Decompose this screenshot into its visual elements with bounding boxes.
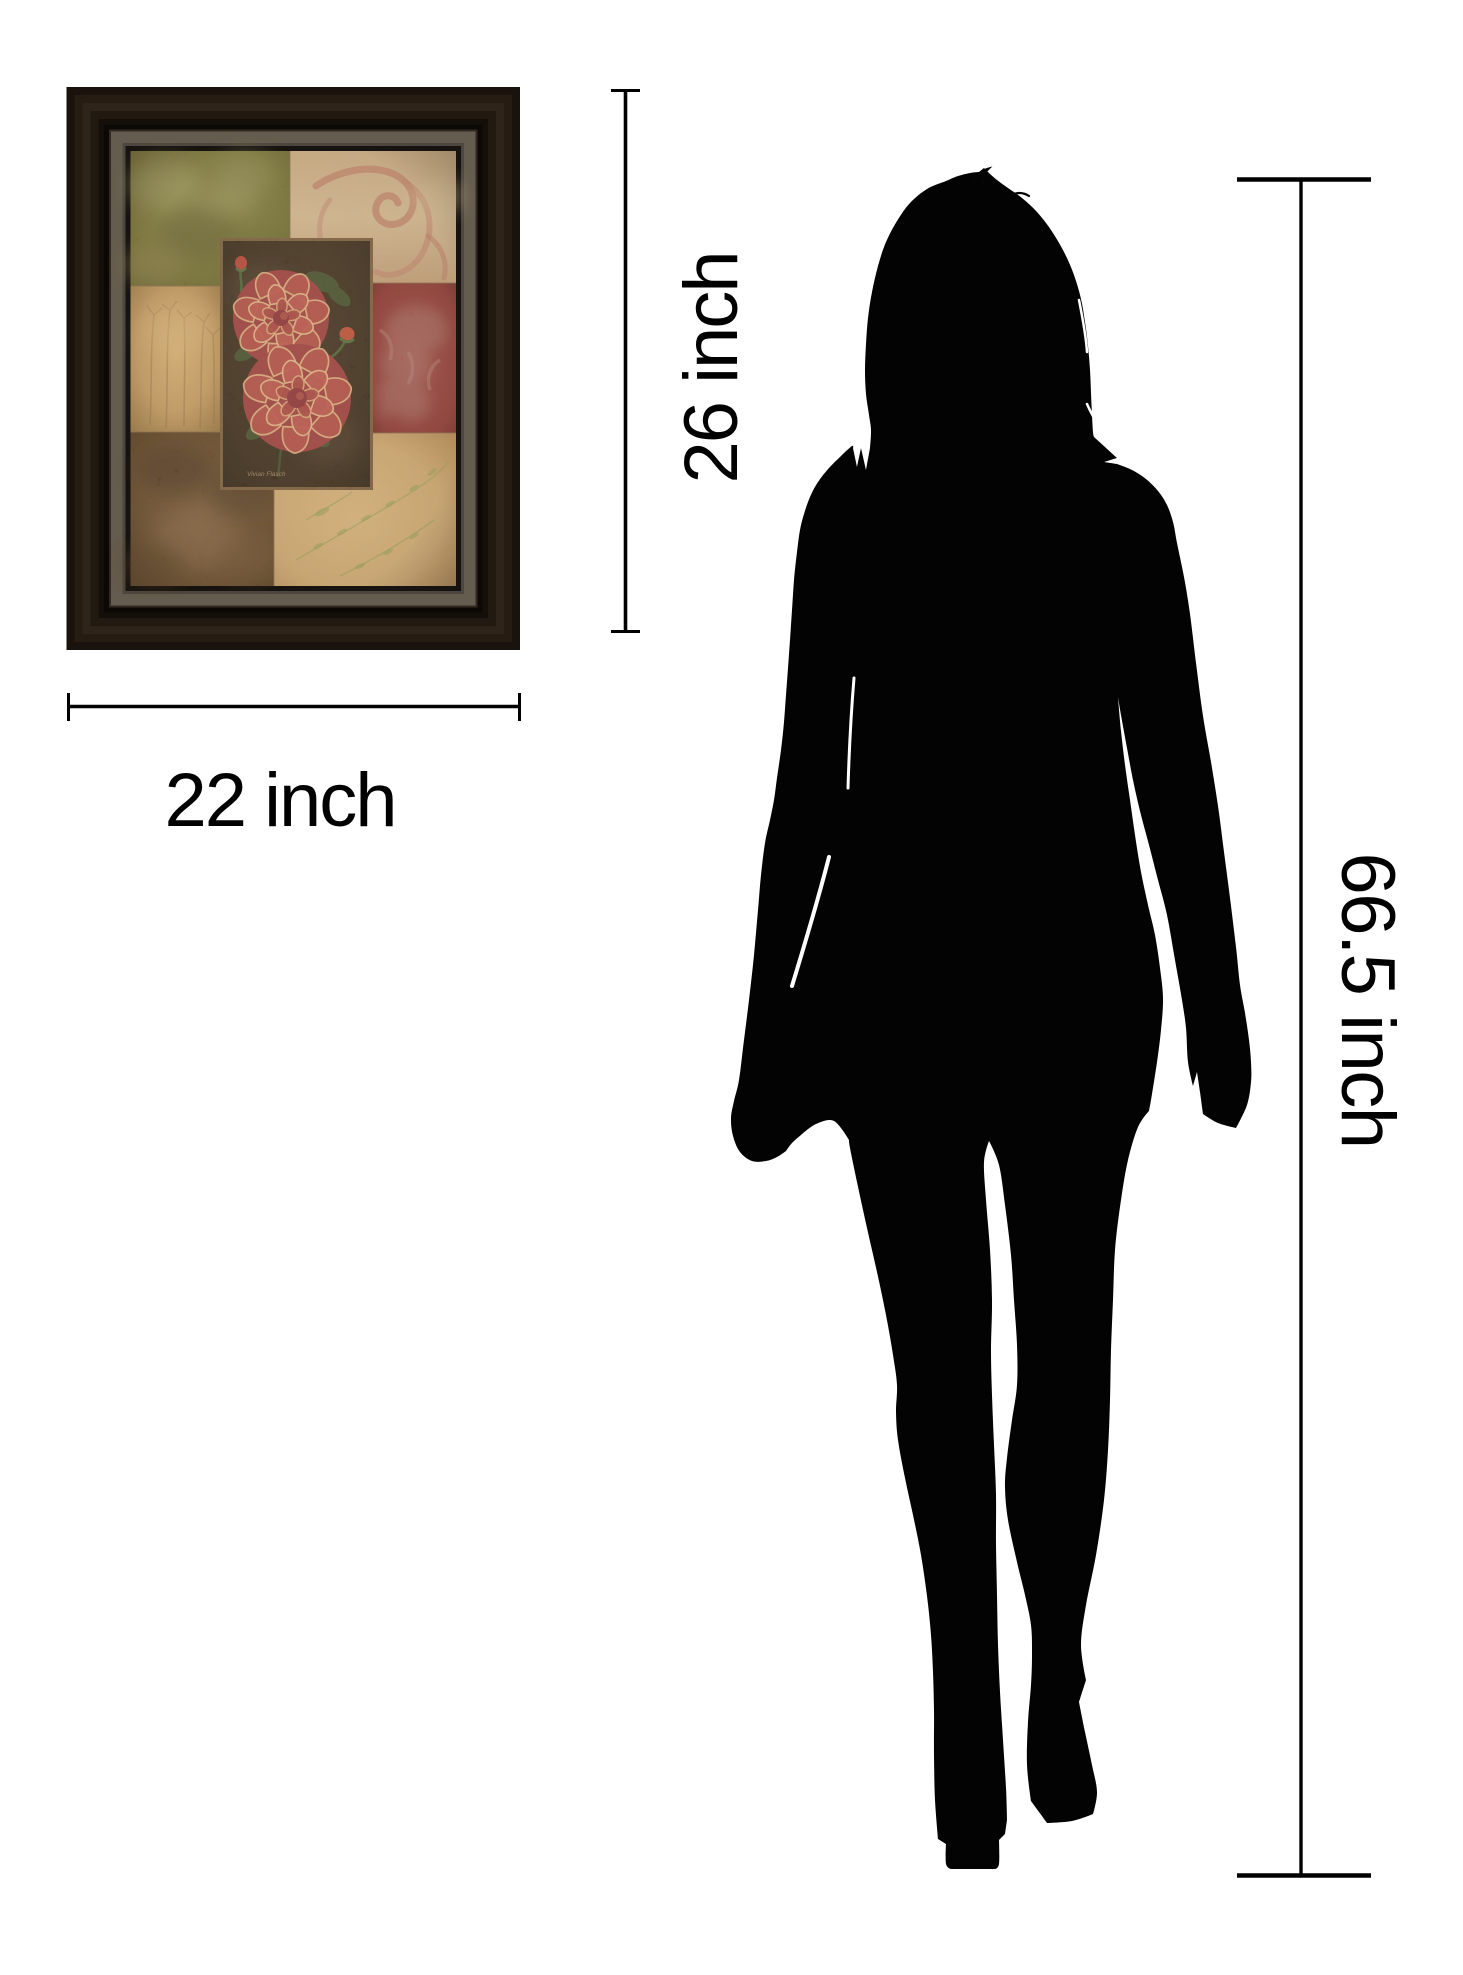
svg-text:66.5 inch: 66.5 inch bbox=[1325, 853, 1410, 1148]
svg-text:26 inch: 26 inch bbox=[669, 252, 754, 483]
svg-text:22 inch: 22 inch bbox=[164, 758, 395, 843]
